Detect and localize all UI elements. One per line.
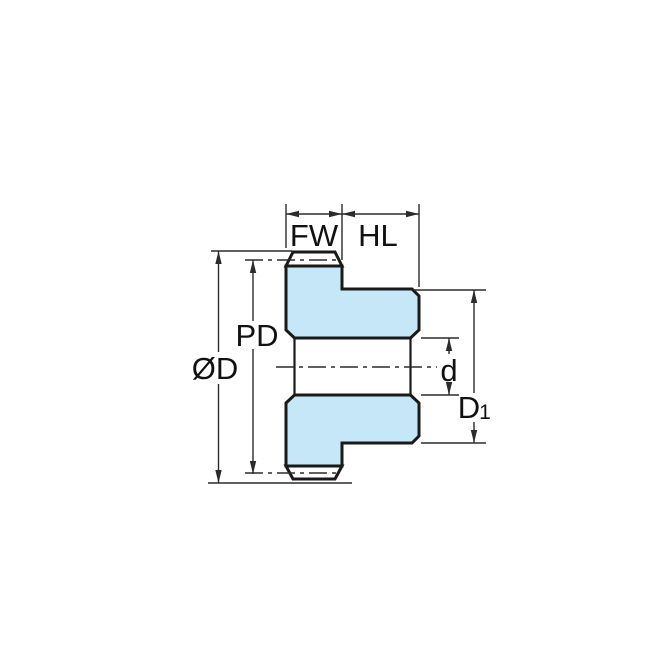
dimension-bore-diameter: d: [421, 338, 459, 395]
gear-lower-section: [286, 395, 419, 466]
gear-body: [286, 252, 419, 479]
outside-diameter-label: ØD: [192, 351, 239, 386]
fw-arrow-right: [329, 211, 342, 217]
bore-diameter-label: d: [440, 353, 457, 388]
hl-arrow-right: [406, 211, 419, 217]
gear-cross-section-drawing: FW HL ØD PD d: [0, 0, 670, 670]
hub-diameter-subscript: 1: [479, 401, 491, 424]
hub-diameter-label: D: [458, 390, 480, 425]
pitch-diameter-label: PD: [235, 318, 278, 353]
hub-length-label: HL: [358, 218, 398, 253]
top-tooth: [286, 252, 342, 266]
bore-arrow-up: [446, 338, 452, 351]
pd-arrow-down: [250, 461, 256, 474]
hl-arrow-left: [342, 211, 355, 217]
dimension-pitch-diameter: PD: [235, 260, 278, 474]
hub-arrow-down: [471, 430, 477, 443]
hub-arrow-up: [471, 290, 477, 303]
od-arrow-down: [215, 470, 221, 483]
gear-upper-section: [286, 266, 419, 338]
face-width-label: FW: [290, 218, 339, 253]
od-arrow-up: [215, 251, 221, 264]
gear-dimension-diagram: FW HL ØD PD d: [0, 0, 670, 670]
pd-arrow-up: [250, 260, 256, 273]
fw-arrow-left: [286, 211, 299, 217]
